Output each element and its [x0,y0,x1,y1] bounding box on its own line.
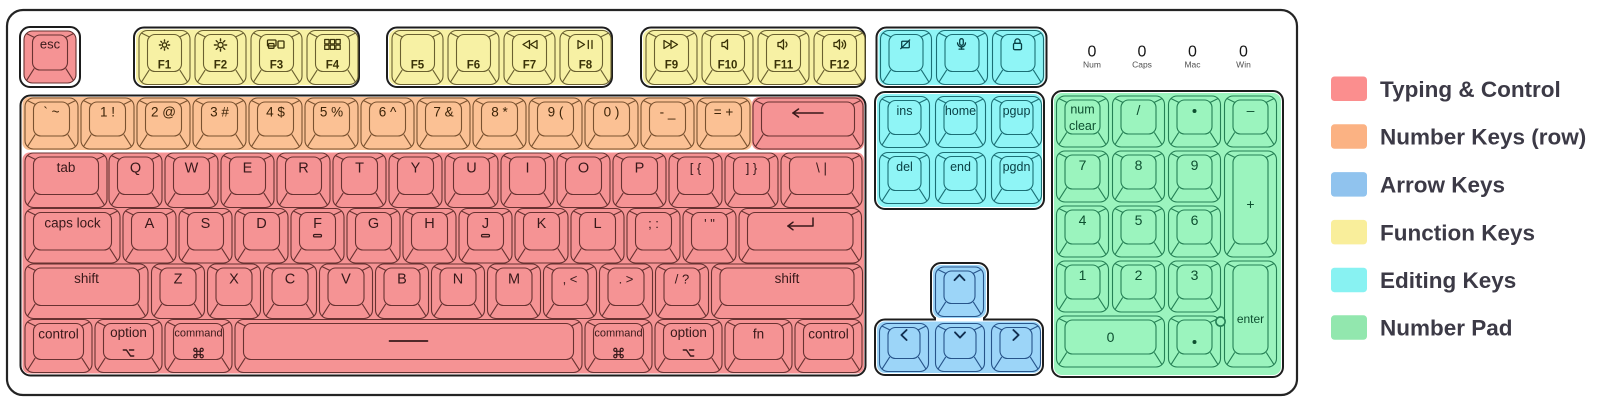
svg-text:0: 0 [1239,44,1248,61]
svg-text:6 ^: 6 ^ [379,105,397,120]
svg-text:5 %: 5 % [320,105,343,120]
svg-text:; :: ; : [648,216,659,231]
svg-text:2: 2 [1135,267,1143,283]
svg-text:D: D [256,216,266,232]
svg-text:` ~: ` ~ [43,105,59,120]
svg-text:C: C [285,272,295,288]
svg-text:–: – [1247,102,1255,118]
svg-text:num: num [1070,103,1094,117]
svg-text:U: U [466,161,476,177]
svg-text:X: X [229,272,239,288]
svg-text:R: R [298,161,308,177]
svg-text:N: N [453,272,463,288]
svg-text:pgup: pgup [1003,104,1031,118]
svg-text:] }: ] } [746,161,758,176]
svg-text:Arrow Keys: Arrow Keys [1380,173,1505,198]
svg-text:Editing Keys: Editing Keys [1380,268,1516,293]
svg-text:9: 9 [1191,157,1199,173]
svg-text:P: P [635,161,645,177]
svg-text:B: B [397,272,407,288]
svg-text:F1: F1 [158,60,172,72]
svg-text:6: 6 [1191,212,1199,228]
svg-text:1 !: 1 ! [100,105,115,120]
svg-text:K: K [537,216,547,232]
svg-text:Function Keys: Function Keys [1380,220,1535,245]
svg-text:Win: Win [1236,60,1251,70]
svg-text:caps lock: caps lock [44,216,101,231]
svg-text:control: control [808,327,849,342]
svg-text:command: command [594,328,642,340]
svg-text:esc: esc [40,37,61,52]
svg-text:pgdn: pgdn [1003,160,1031,174]
svg-text:3 #: 3 # [210,105,229,120]
svg-text:W: W [185,161,199,177]
svg-text:7 &: 7 & [433,105,453,120]
svg-text:enter: enter [1237,312,1264,326]
svg-text:Number Pad: Number Pad [1380,316,1513,341]
svg-text:F12: F12 [830,60,850,72]
svg-text:F7: F7 [523,60,536,72]
svg-text:Mac: Mac [1184,60,1201,70]
svg-text:0 ): 0 ) [604,105,620,120]
svg-text:G: G [368,216,379,232]
svg-text:4: 4 [1079,212,1087,228]
svg-text:F11: F11 [774,60,794,72]
svg-text:3: 3 [1191,267,1199,283]
svg-text:Q: Q [130,161,141,177]
svg-text:Caps: Caps [1132,60,1152,70]
svg-text:tab: tab [57,160,76,175]
svg-text:0: 0 [1107,329,1115,345]
svg-text:F8: F8 [579,60,593,72]
svg-text:0: 0 [1088,44,1097,61]
svg-text:Typing & Control: Typing & Control [1380,77,1561,102]
svg-text:command: command [174,328,222,340]
svg-text:I: I [525,161,529,177]
svg-text:control: control [38,327,79,342]
svg-text:8 *: 8 * [491,105,508,120]
svg-text:[ {: [ { [690,161,702,176]
svg-text:4 $: 4 $ [266,105,285,120]
svg-text:ins: ins [897,104,913,118]
svg-text:option: option [110,325,147,340]
svg-text:F5: F5 [411,60,425,72]
svg-text:/: / [1137,102,1141,118]
svg-text:Z: Z [174,272,183,288]
svg-text:E: E [243,161,253,177]
svg-text:8: 8 [1135,157,1143,173]
svg-text:Num: Num [1083,60,1101,70]
svg-text:T: T [355,161,364,177]
svg-text:A: A [145,216,155,232]
svg-text:F: F [313,216,322,232]
svg-text:9 (: 9 ( [548,105,564,120]
svg-text:0: 0 [1138,44,1147,61]
svg-text:, <: , < [563,272,578,287]
svg-text:J: J [482,216,489,232]
svg-text:0: 0 [1188,44,1197,61]
svg-text:shift: shift [775,271,800,286]
svg-text:F2: F2 [214,60,227,72]
svg-text:F6: F6 [467,60,480,72]
svg-text:Number Keys (row): Number Keys (row) [1380,125,1586,150]
svg-text:end: end [950,160,971,174]
svg-text:del: del [896,160,913,174]
svg-text:7: 7 [1079,157,1087,173]
svg-text:F3: F3 [270,60,283,72]
svg-text:F10: F10 [718,60,738,72]
svg-text:shift: shift [74,271,99,286]
svg-text:F9: F9 [665,60,678,72]
svg-text:. >: . > [619,272,634,287]
svg-text:+: + [1246,196,1254,212]
svg-text:F4: F4 [326,60,340,72]
svg-text:home: home [945,104,976,118]
svg-text:- _: - _ [660,105,676,120]
svg-text:option: option [670,325,707,340]
svg-text:\ |: \ | [816,161,827,176]
svg-text:/ ?: / ? [675,272,689,287]
svg-text:2 @: 2 @ [151,105,176,120]
svg-text:L: L [593,216,601,232]
svg-text:1: 1 [1079,267,1087,283]
svg-text:M: M [508,272,520,288]
svg-text:H: H [424,216,434,232]
svg-text:clear: clear [1069,119,1096,133]
svg-text:S: S [201,216,211,232]
svg-text:Y: Y [411,161,421,177]
svg-text:5: 5 [1135,212,1143,228]
svg-text:= +: = + [714,105,734,120]
svg-text:O: O [578,161,589,177]
svg-text:V: V [341,272,351,288]
svg-text:' ": ' " [704,216,715,231]
svg-text:fn: fn [753,327,764,342]
